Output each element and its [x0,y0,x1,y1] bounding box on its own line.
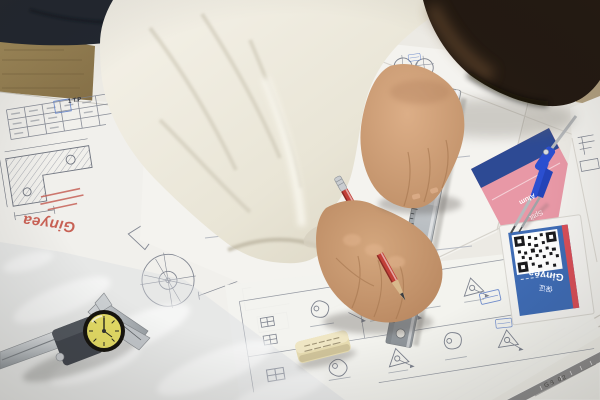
desk-photo: 25 26 [0,0,600,400]
scene-canvas: 25 26 [0,0,600,400]
vignette [0,0,600,400]
